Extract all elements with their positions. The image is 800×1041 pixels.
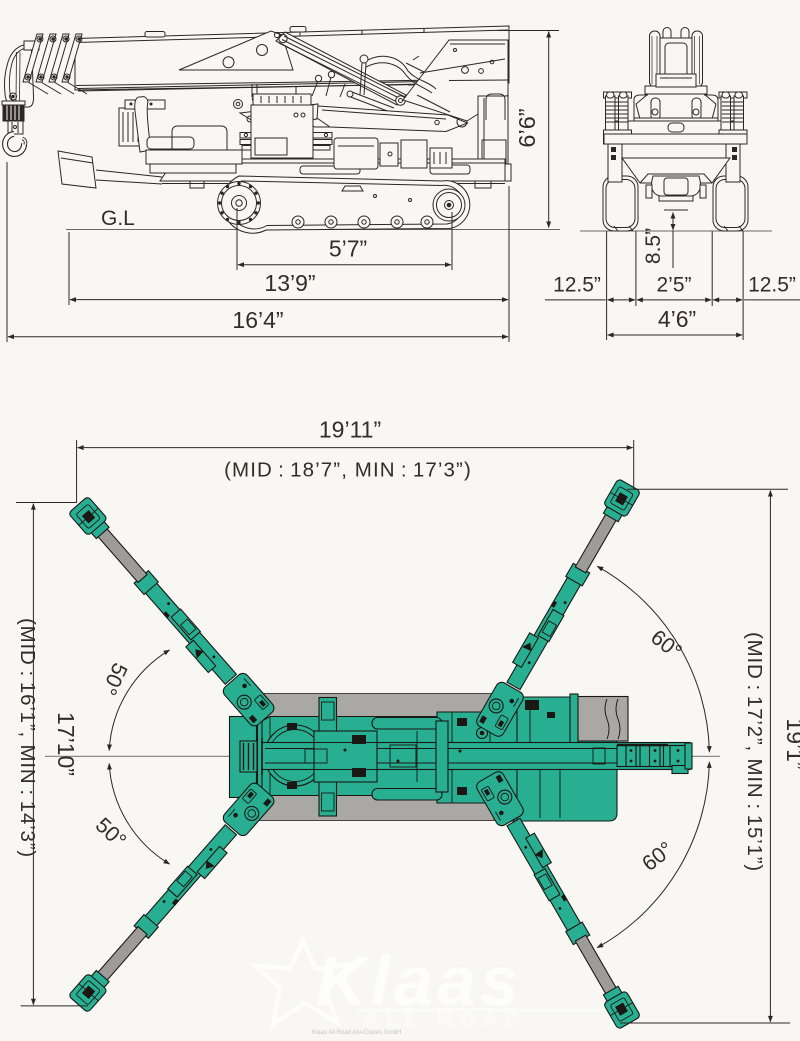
svg-text:(MID : 18’7”, MIN : 17’3”): (MID : 18’7”, MIN : 17’3”)	[224, 459, 472, 482]
svg-text:19’1”: 19’1”	[782, 718, 800, 769]
svg-text:4’6”: 4’6”	[658, 306, 696, 332]
svg-text:12.5”: 12.5”	[748, 274, 796, 297]
svg-text:6’6”: 6’6”	[514, 108, 540, 147]
svg-text:12.5”: 12.5”	[553, 274, 601, 297]
svg-text:Klaas All Road Alu-Cranes GmbH: Klaas All Road Alu-Cranes GmbH	[312, 1030, 401, 1036]
svg-text:5’7”: 5’7”	[329, 236, 367, 262]
svg-text:13’9”: 13’9”	[264, 270, 315, 296]
svg-text:17’10”: 17’10”	[53, 712, 79, 776]
svg-text:19’11”: 19’11”	[319, 417, 381, 443]
svg-text:G.L: G.L	[101, 207, 135, 230]
svg-text:8.5”: 8.5”	[642, 228, 665, 264]
svg-text:(MID : 17’2”, MIN : 15’1”): (MID : 17’2”, MIN : 15’1”)	[743, 632, 766, 872]
svg-text:2’5”: 2’5”	[656, 274, 691, 297]
svg-text:ALL ROAD: ALL ROAD	[364, 1009, 527, 1031]
svg-text:(MID : 16’1”, MIN : 14’3”): (MID : 16’1”, MIN : 14’3”)	[16, 618, 39, 858]
svg-text:16’4”: 16’4”	[232, 307, 283, 333]
